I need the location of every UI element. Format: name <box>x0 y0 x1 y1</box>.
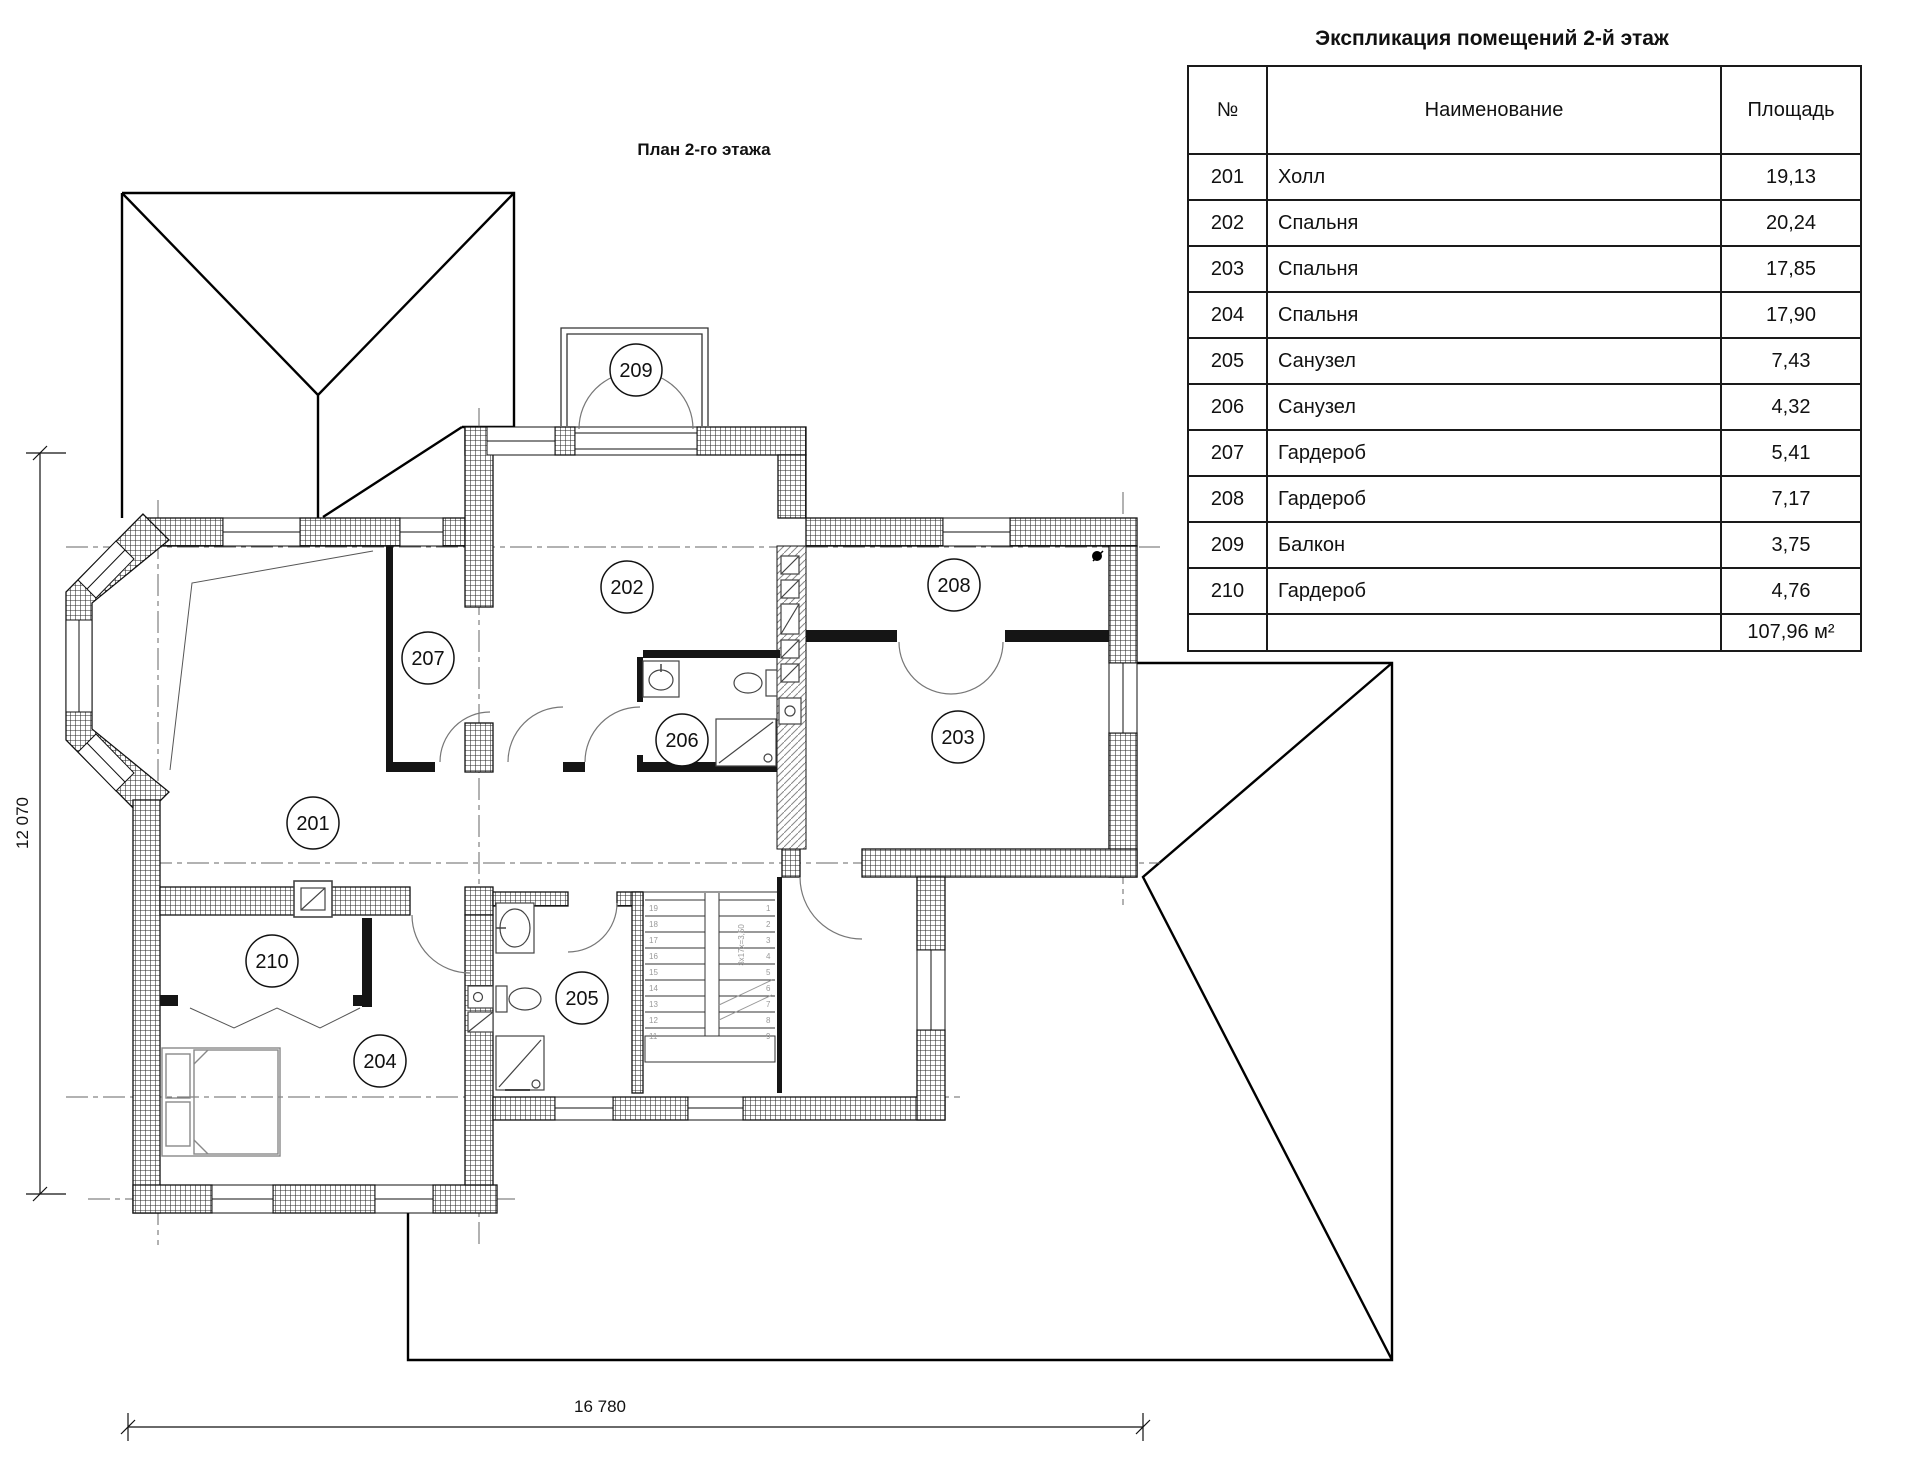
shower-tray <box>716 719 776 766</box>
room-label-207: 207 <box>411 648 444 670</box>
page: План 2-го этажа Экспликация помещений 2-… <box>0 0 1920 1479</box>
stair-number: 17 <box>649 936 658 945</box>
window <box>223 518 300 546</box>
roof-right <box>408 663 1392 1360</box>
window <box>1109 663 1137 733</box>
stair-number: 8 <box>766 1016 771 1025</box>
wall-shaft-box <box>294 881 332 917</box>
stair-tread-numbers: 191817161514131211123456789 <box>649 904 771 1041</box>
stair-number: 18 <box>649 920 658 929</box>
stair-number: 2 <box>766 920 771 929</box>
room-label-209: 209 <box>619 360 652 382</box>
stair-number: 19 <box>649 904 658 913</box>
stair-number: 5 <box>766 968 771 977</box>
bed <box>162 1048 280 1156</box>
ceiling-slope-line <box>170 551 373 770</box>
window <box>212 1185 273 1213</box>
utility-dot <box>1092 551 1103 561</box>
roof-top-left <box>122 193 514 518</box>
stair-number: 16 <box>649 952 658 961</box>
window <box>487 427 555 455</box>
stair-number: 3 <box>766 936 771 945</box>
room-label-201: 201 <box>296 813 329 835</box>
stair-number: 15 <box>649 968 658 977</box>
window <box>555 1097 613 1120</box>
floor-plan-drawing: 3x17x=3,50 191817161514131211123456789 1… <box>0 0 1920 1479</box>
room-label-210: 210 <box>255 951 288 973</box>
window <box>375 1185 433 1213</box>
stair-number: 11 <box>649 1032 658 1041</box>
dimension-left-value: 12 070 <box>13 797 32 849</box>
room-label-202: 202 <box>610 577 643 599</box>
shower-tray <box>496 1036 544 1090</box>
room-label-203: 203 <box>941 727 974 749</box>
vent-shafts <box>294 551 1103 1032</box>
windows <box>66 427 1137 1213</box>
dimension-bottom: 16 780 <box>121 1397 1150 1441</box>
stairs-note: 3x17x=3,50 <box>737 924 746 966</box>
stair-number: 13 <box>649 1000 658 1009</box>
stair-number: 1 <box>766 904 771 913</box>
window <box>688 1097 743 1120</box>
stair-number: 4 <box>766 952 771 961</box>
stair-treads <box>645 900 775 1028</box>
bathroom-205-fixtures <box>496 903 544 1090</box>
bay-window <box>66 620 92 712</box>
stair-number: 12 <box>649 1016 658 1025</box>
dimension-bottom-value: 16 780 <box>574 1397 626 1416</box>
window <box>943 518 1010 546</box>
balcony-door-opening <box>575 427 697 455</box>
stair-number: 7 <box>766 1000 771 1009</box>
wardrobe-rail <box>190 1008 360 1028</box>
room-label-205: 205 <box>565 988 598 1010</box>
window <box>917 950 945 1030</box>
stair-number: 6 <box>766 984 771 993</box>
window <box>400 518 443 546</box>
stairs: 3x17x=3,50 191817161514131211123456789 <box>645 893 775 1062</box>
stair-number: 14 <box>649 984 658 993</box>
room-label-206: 206 <box>665 730 698 752</box>
dimension-left: 12 070 <box>13 446 66 1201</box>
stair-number: 9 <box>766 1032 771 1041</box>
room-label-208: 208 <box>937 575 970 597</box>
room-label-204: 204 <box>363 1051 396 1073</box>
